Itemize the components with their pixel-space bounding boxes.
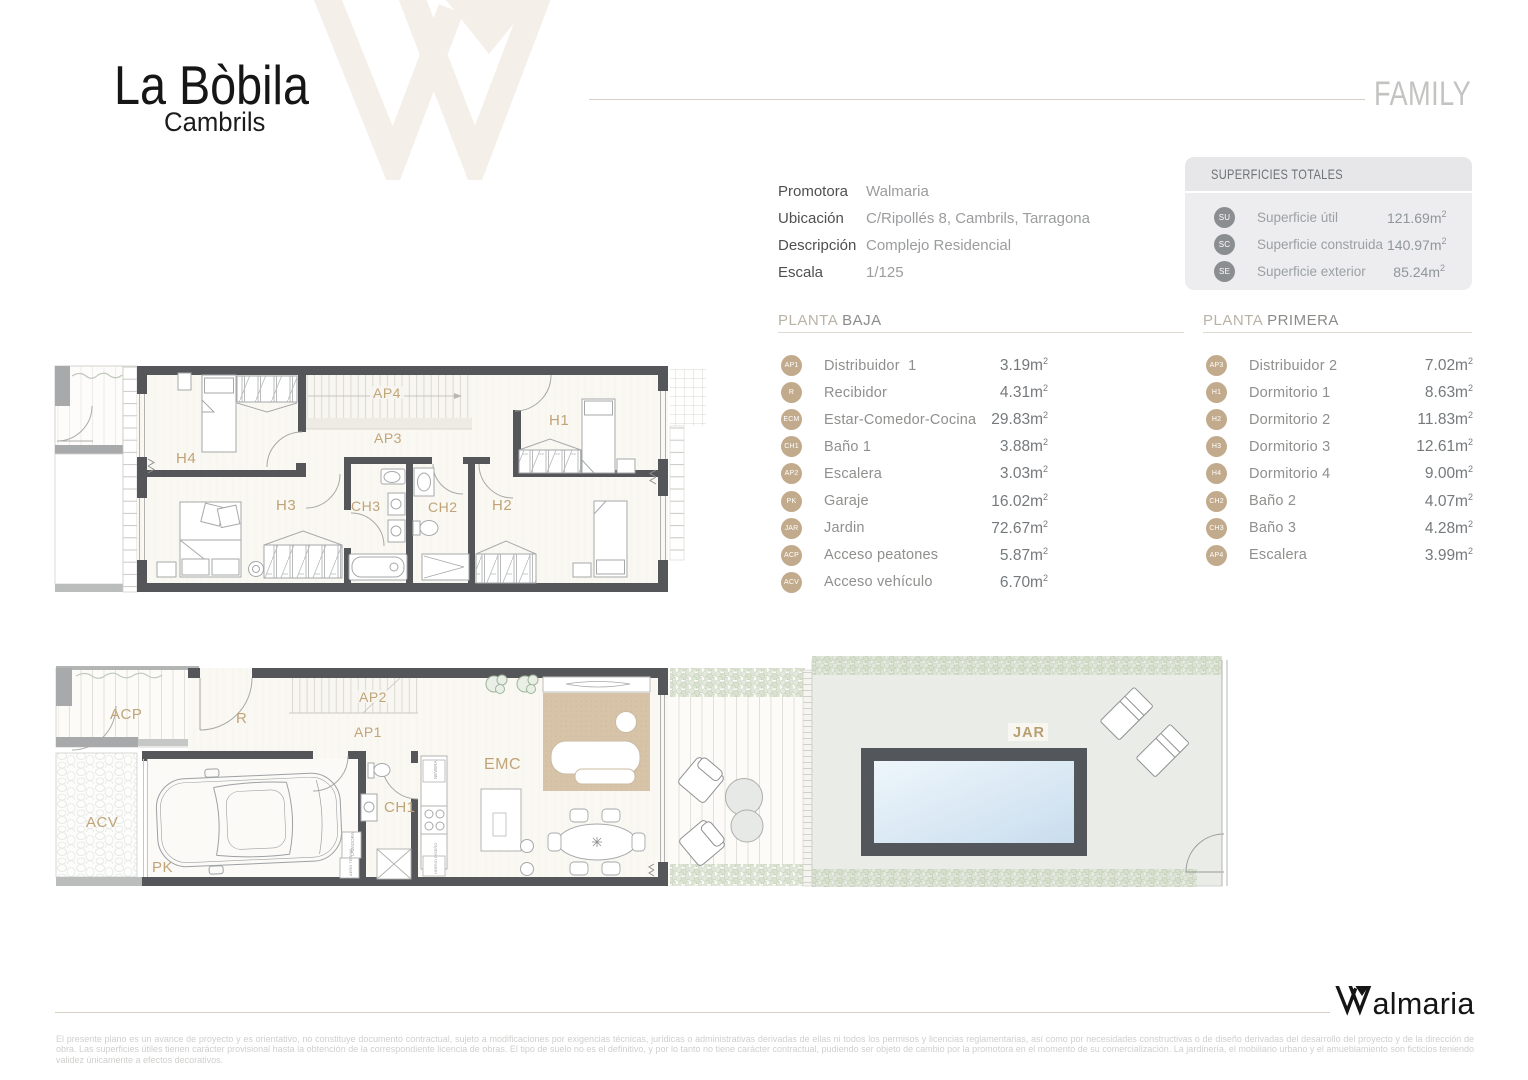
svg-text:EMC: EMC — [484, 756, 521, 773]
svg-text:AP2: AP2 — [359, 689, 387, 705]
svg-text:AP1: AP1 — [354, 724, 382, 740]
svg-text:CH3: CH3 — [351, 498, 381, 514]
svg-text:HORNO DISEÑO: HORNO DISEÑO — [433, 843, 438, 874]
svg-text:ACP: ACP — [110, 706, 142, 723]
svg-text:R: R — [236, 710, 247, 727]
svg-text:CH2: CH2 — [428, 499, 458, 515]
svg-text:NEVERA: NEVERA — [433, 760, 438, 779]
svg-text:CH1: CH1 — [384, 799, 416, 816]
svg-text:PK: PK — [152, 859, 173, 876]
svg-text:H1: H1 — [549, 412, 569, 429]
svg-text:almaria: almaria — [1373, 987, 1475, 1020]
svg-text:AP4: AP4 — [373, 385, 401, 401]
svg-text:AERO TERMIA: AERO TERMIA — [348, 848, 353, 876]
svg-text:AP3: AP3 — [374, 430, 402, 446]
svg-text:H2: H2 — [492, 497, 512, 514]
svg-text:H3: H3 — [276, 497, 296, 514]
svg-text:ACV: ACV — [86, 814, 118, 831]
svg-text:JAR: JAR — [1013, 725, 1045, 741]
svg-text:H4: H4 — [176, 450, 196, 467]
